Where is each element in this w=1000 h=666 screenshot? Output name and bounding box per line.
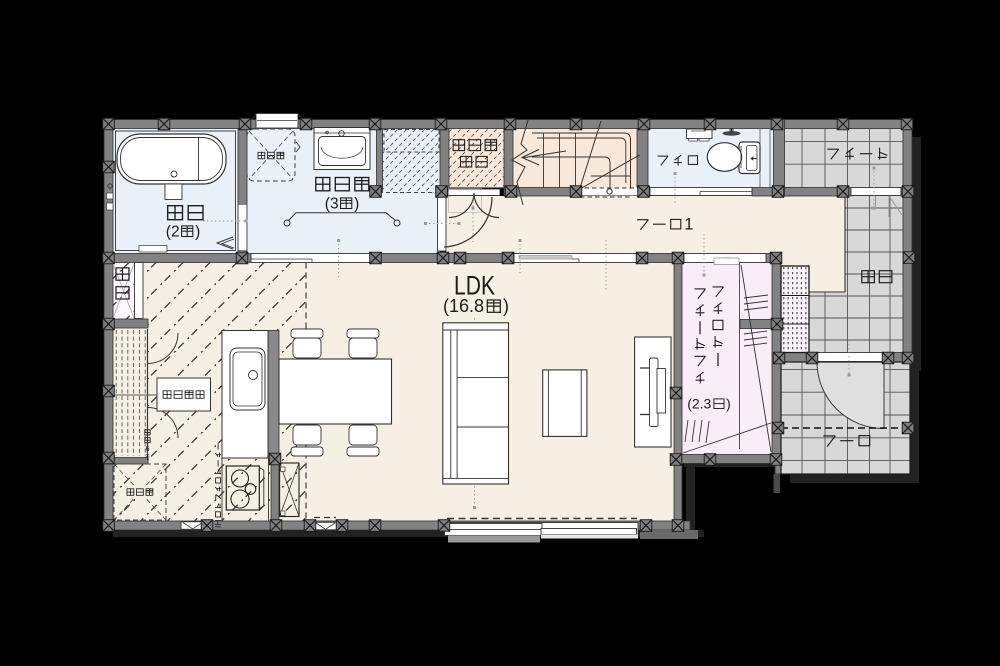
svg-text:(16.8: (16.8 — [443, 296, 484, 316]
svg-text:(2.3: (2.3 — [687, 395, 711, 411]
svg-text:(3: (3 — [325, 195, 339, 212]
svg-text:(2: (2 — [166, 223, 180, 240]
svg-text:=: = — [145, 452, 150, 461]
svg-text:): ) — [195, 223, 200, 240]
svg-text:IH: IH — [213, 520, 223, 529]
svg-text:1: 1 — [684, 216, 693, 234]
svg-text:): ) — [503, 296, 509, 316]
svg-text:): ) — [726, 395, 731, 411]
svg-text:): ) — [354, 195, 359, 212]
